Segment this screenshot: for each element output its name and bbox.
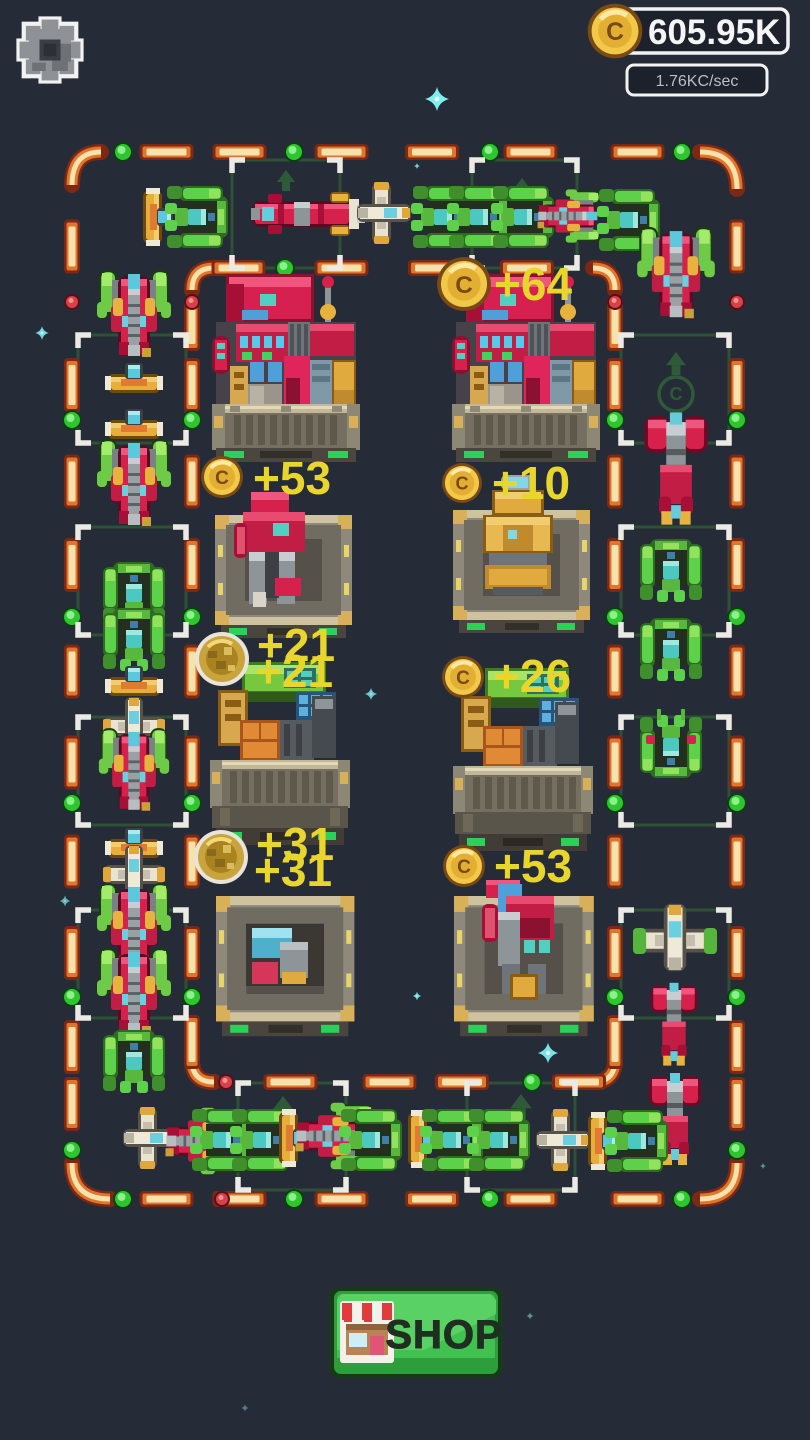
svg-text:+26: +26: [493, 650, 571, 702]
svg-text:+31: +31: [254, 844, 332, 896]
svg-text:+21: +21: [255, 645, 333, 697]
svg-text:C: C: [670, 384, 683, 404]
svg-text:+64: +64: [494, 258, 572, 310]
svg-text:605.95K: 605.95K: [648, 13, 780, 52]
svg-text:+53: +53: [494, 840, 572, 892]
svg-text:1.76KC/sec: 1.76KC/sec: [656, 73, 739, 90]
svg-text:+10: +10: [492, 457, 570, 509]
svg-text:+53: +53: [253, 452, 331, 504]
svg-text:SHOP: SHOP: [385, 1313, 502, 1357]
